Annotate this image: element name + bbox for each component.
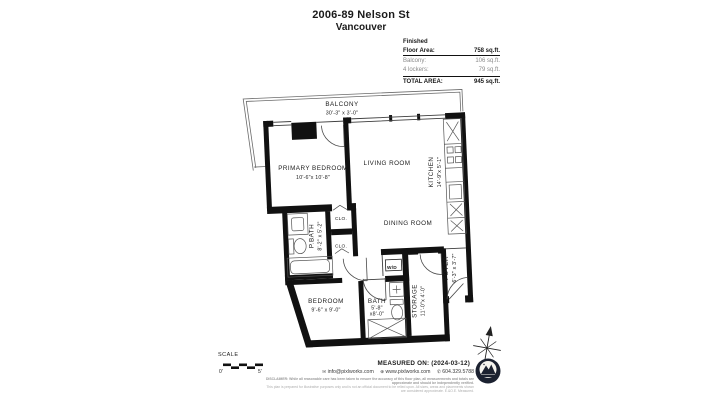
contact-phone: ✆ 604.329.5788 <box>437 369 474 375</box>
kitchen-label: KITCHEN <box>428 157 435 188</box>
scale-label: SCALE <box>218 352 239 358</box>
foyer-label: FOYER <box>443 256 450 280</box>
disclaimer-text: DISCLAIMER: While all reasonable care ha… <box>262 377 474 393</box>
toilet-bowl <box>391 305 403 320</box>
storage-dims: 11'-0"x 4'-0" <box>421 286 427 316</box>
vanity <box>287 213 308 235</box>
disclaimer-line-2: This plan is prepared for illustrative p… <box>262 385 474 393</box>
contact-email: ✉ info@pixlworks.com <box>322 369 374 375</box>
measured-on-date: MEASURED ON: (2024-03-12) <box>260 360 470 367</box>
closet-1-label: CLO. <box>335 216 347 222</box>
balcony-door <box>321 125 344 148</box>
email-text: info@pixlworks.com <box>328 369 374 375</box>
balcony-dims: 30'-3" x 3'-0" <box>326 111 358 117</box>
floor-plan-drawing: BALCONY 30'-3" x 3'-0" PRIMARY BEDROOM 1… <box>0 0 720 405</box>
bath-label: BATH <box>368 298 386 305</box>
dining-room-label: DINING ROOM <box>384 220 432 227</box>
scale-bar <box>223 364 263 370</box>
hall-door <box>343 258 367 282</box>
primary-bath-dims: 8'-2" x 5'-2" <box>318 221 324 250</box>
email-icon: ✉ <box>322 369 326 374</box>
contact-website: ⊕ www.pixlworks.com <box>380 369 430 375</box>
primary-bedroom-label: PRIMARY BEDROOM <box>278 165 348 172</box>
storage-label: STORAGE <box>412 284 419 318</box>
living-room-label: LIVING ROOM <box>364 160 411 167</box>
toilet-tank <box>288 239 294 254</box>
primary-bath-label: P.BATH <box>309 224 316 248</box>
scale-start-value: 0' <box>219 369 223 375</box>
phone-icon: ✆ <box>437 369 441 374</box>
storage-door <box>420 253 442 275</box>
washer-dryer-label: W/D <box>387 265 397 271</box>
company-logo <box>476 359 501 384</box>
floor-plan-page: 2006-89 Nelson St Vancouver Finished Flo… <box>0 0 720 405</box>
kitchen-dims: 14'-9"x 5'-1" <box>437 157 443 188</box>
disclaimer-line-1: DISCLAIMER: While all reasonable care ha… <box>262 377 474 385</box>
bedroom-label: BEDROOM <box>308 298 344 305</box>
closet-2-label: CLO. <box>335 244 347 250</box>
bedroom-dims: 9'-6" x 9'-0" <box>311 308 340 314</box>
windows <box>273 114 467 283</box>
bath-dims-line2: x8'-0" <box>370 312 384 318</box>
foyer-dims: 6'-3" x 3'-7" <box>452 253 458 282</box>
website-text: www.pixlworks.com <box>386 369 431 375</box>
balcony-label: BALCONY <box>325 101 359 108</box>
contact-row: ✉ info@pixlworks.com ⊕ www.pixlworks.com… <box>260 369 474 375</box>
phone-text: 604.329.5788 <box>442 369 474 375</box>
primary-bedroom-dims: 10'-6"x 10'-8" <box>296 175 330 181</box>
globe-icon: ⊕ <box>380 369 384 374</box>
toilet-bowl <box>294 238 307 254</box>
toilet-tank <box>390 299 403 305</box>
